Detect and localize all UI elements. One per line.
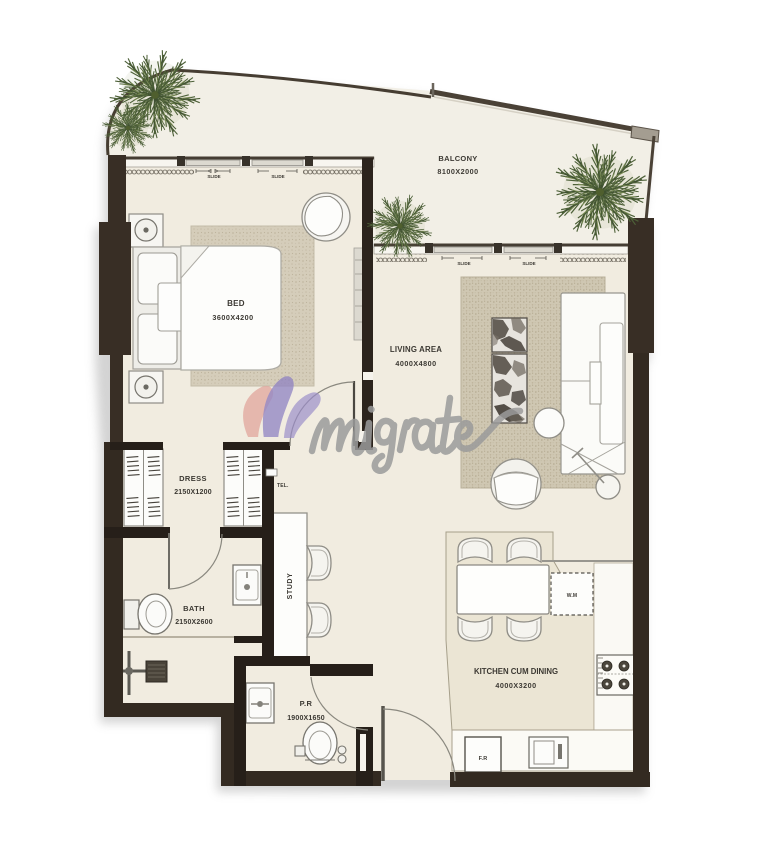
svg-text:SLIDE: SLIDE [271, 174, 284, 179]
svg-text:KITCHEN CUM DINING: KITCHEN CUM DINING [474, 667, 558, 676]
svg-text:4000X3200: 4000X3200 [495, 681, 536, 690]
svg-text:SLIDE: SLIDE [207, 174, 220, 179]
svg-text:1900X1650: 1900X1650 [287, 715, 325, 722]
svg-text:F.R: F.R [479, 756, 488, 762]
svg-text:SLIDE: SLIDE [457, 261, 470, 266]
svg-text:8100X2000: 8100X2000 [437, 167, 478, 176]
svg-text:3600X4200: 3600X4200 [212, 313, 253, 322]
svg-text:2150X2600: 2150X2600 [175, 619, 213, 626]
svg-text:SLIDE: SLIDE [522, 261, 535, 266]
svg-text:BED: BED [227, 299, 245, 308]
svg-text:STUDY: STUDY [287, 573, 294, 600]
svg-text:BATH: BATH [183, 604, 205, 613]
svg-text:2150X1200: 2150X1200 [174, 489, 212, 496]
svg-text:TEL.: TEL. [277, 483, 289, 489]
svg-text:LIVING AREA: LIVING AREA [390, 345, 442, 354]
svg-text:4000X4800: 4000X4800 [395, 359, 436, 368]
svg-text:BALCONY: BALCONY [438, 154, 477, 163]
svg-text:DRESS: DRESS [179, 474, 207, 483]
svg-text:P.R: P.R [300, 699, 313, 708]
svg-text:W.M: W.M [567, 593, 578, 599]
